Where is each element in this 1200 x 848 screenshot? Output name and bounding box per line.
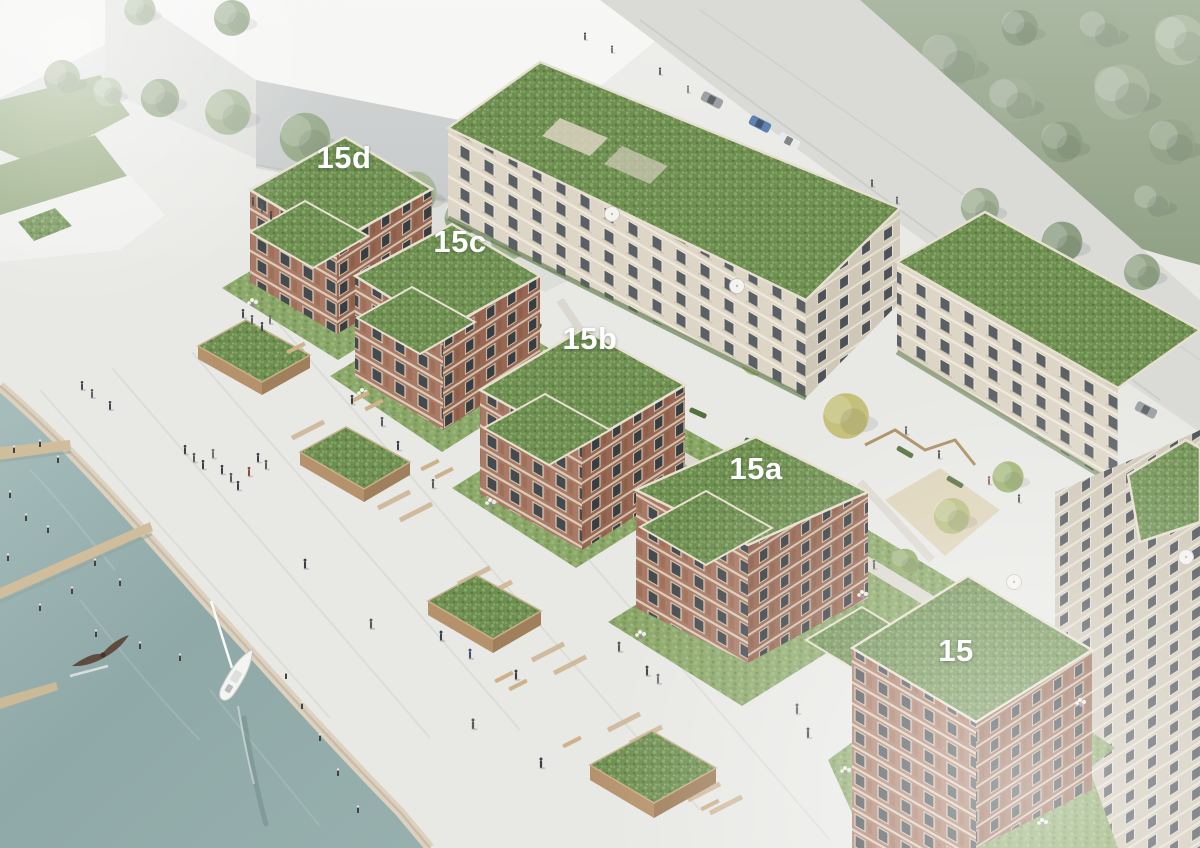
- building-label-15b: 15b: [563, 321, 618, 357]
- mist: [0, 0, 1200, 848]
- building-label-15d: 15d: [317, 140, 372, 176]
- architectural-rendering-scene: 15d 15c 15b 15a 15: [0, 0, 1200, 848]
- building-label-15: 15: [938, 633, 973, 669]
- rendering-canvas: [0, 0, 1200, 848]
- building-label-15c: 15c: [433, 224, 486, 260]
- building-label-15a: 15a: [729, 451, 782, 487]
